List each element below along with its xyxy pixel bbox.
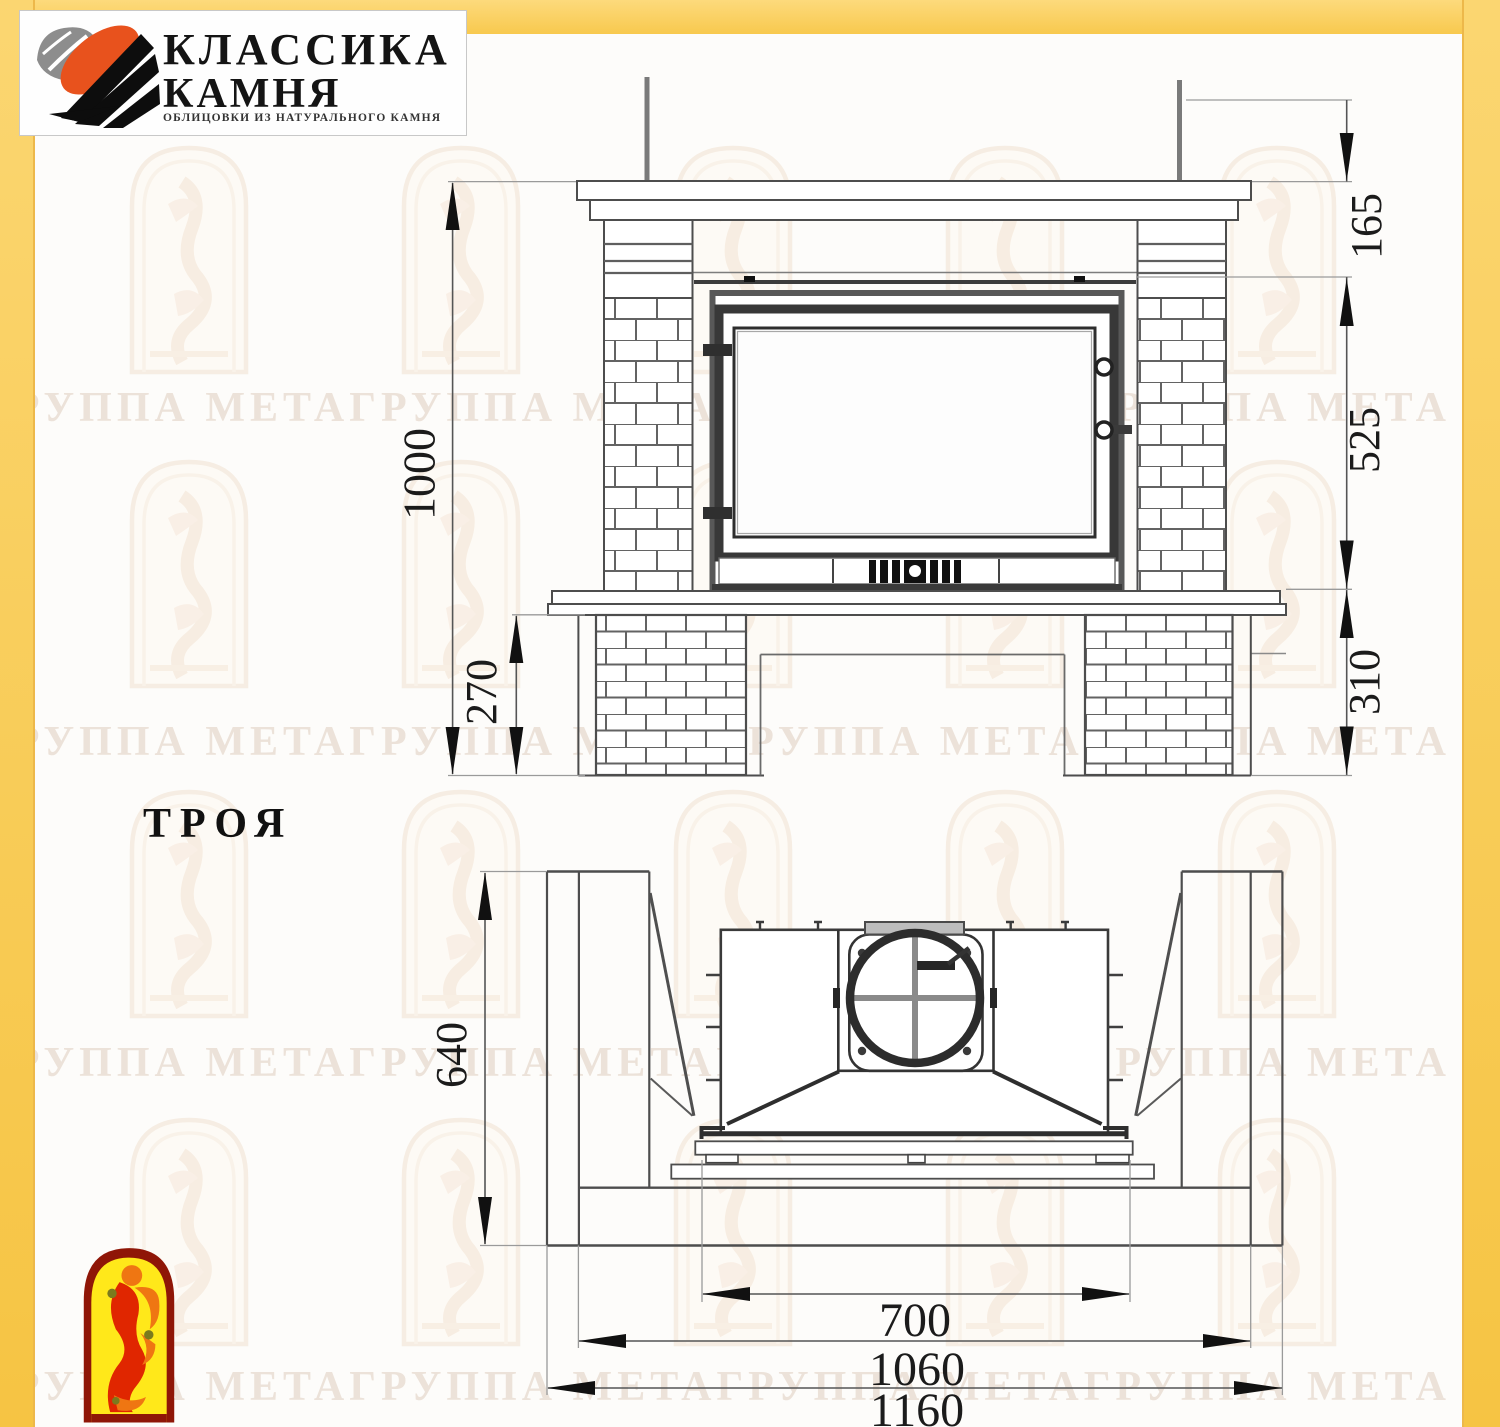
svg-text:КЛАССИКА: КЛАССИКА — [163, 25, 451, 74]
svg-text:700: 700 — [879, 1294, 951, 1347]
svg-text:310: 310 — [1340, 649, 1389, 715]
svg-text:640: 640 — [427, 1022, 476, 1088]
svg-text:270: 270 — [457, 659, 506, 725]
svg-text:КАМНЯ: КАМНЯ — [163, 71, 341, 117]
svg-text:1000: 1000 — [394, 428, 445, 520]
svg-text:165: 165 — [1342, 193, 1391, 259]
svg-text:1160: 1160 — [870, 1384, 964, 1427]
svg-text:ОБЛИЦОВКИ ИЗ НАТУРАЛЬНОГО КАМН: ОБЛИЦОВКИ ИЗ НАТУРАЛЬНОГО КАМНЯ — [163, 112, 441, 124]
svg-text:525: 525 — [1340, 407, 1389, 473]
